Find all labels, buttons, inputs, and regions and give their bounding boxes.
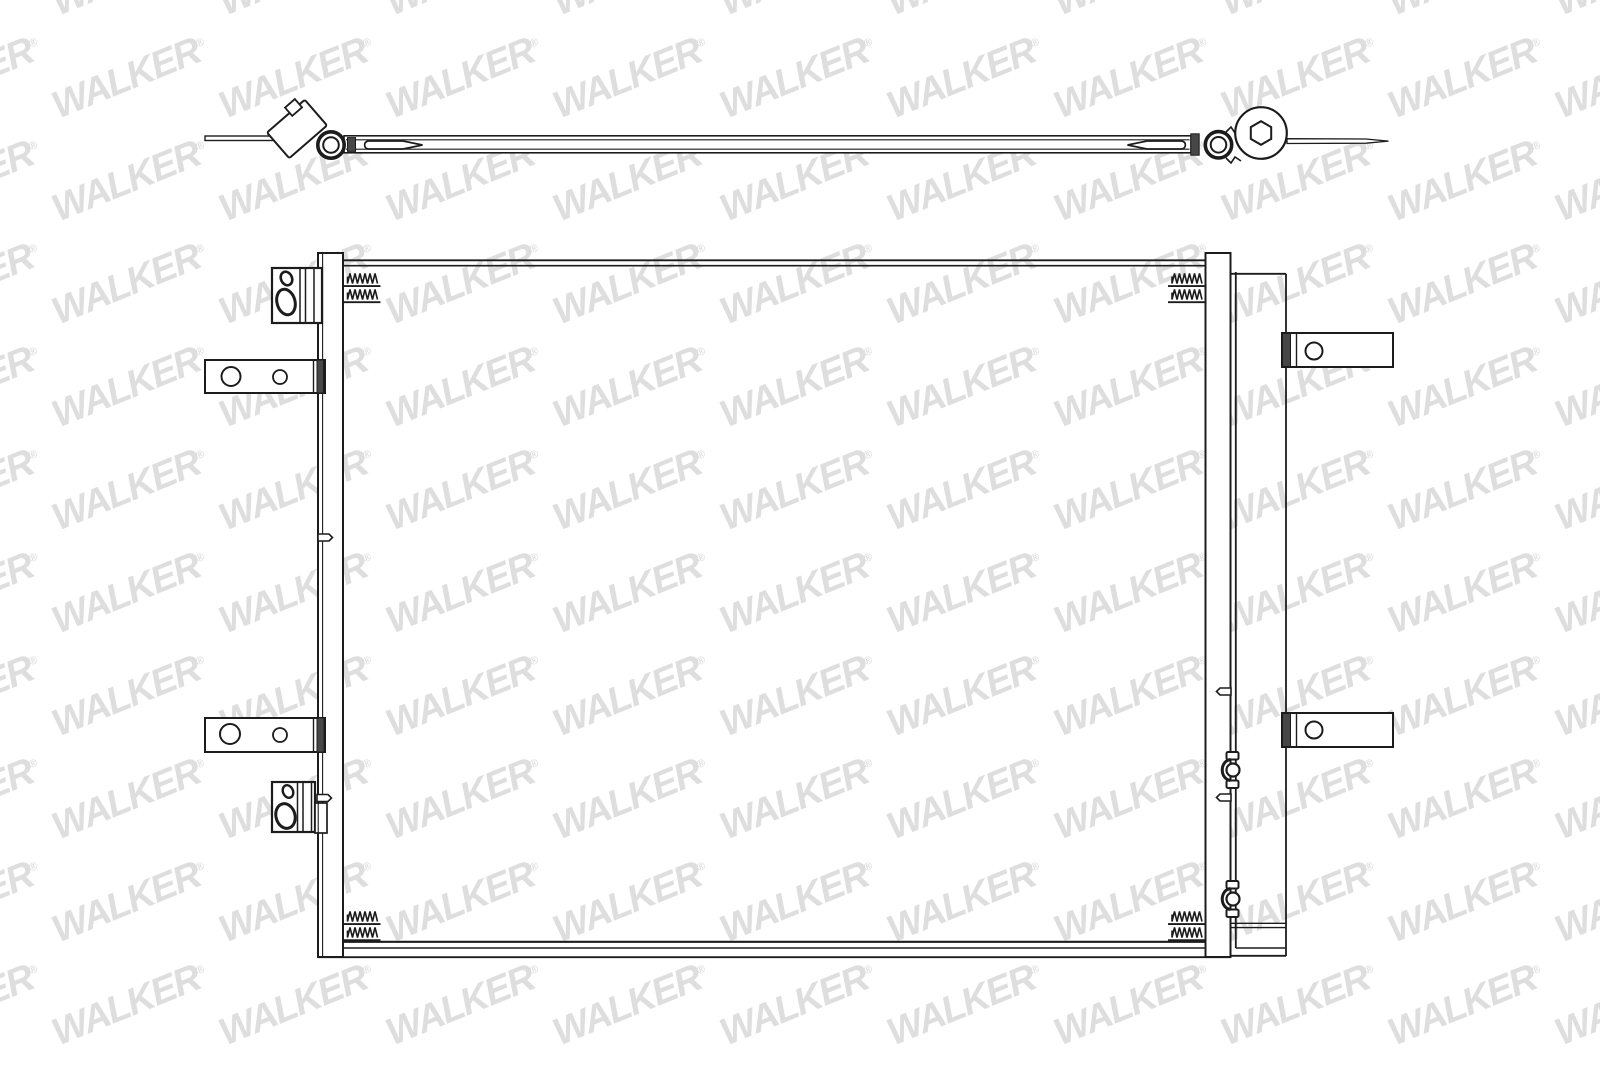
mounting-tab-lower-left (205, 718, 325, 752)
top-view-left-connector (348, 138, 356, 152)
spring-symbol-bottom-left (344, 912, 381, 941)
top-view-end-divider (1191, 134, 1199, 155)
spring-symbol-bottom-right (1168, 912, 1205, 941)
top-view-left-rod (205, 136, 278, 141)
top-view-right-pointer-rod (1287, 139, 1389, 144)
spring-symbol-top-left (344, 274, 381, 303)
bleed-pin-right-upper (1217, 688, 1232, 695)
mounting-tab-upper-right (1282, 333, 1393, 367)
bleed-pin-lower-left (317, 795, 332, 802)
top-view-right-bushing-ring (1205, 132, 1231, 158)
bleed-pin-right-lower (1217, 794, 1232, 801)
condenser-technical-drawing (0, 0, 1600, 1067)
top-view-pivot-eye-hex-nut (1235, 107, 1287, 159)
receiver-drier (1231, 272, 1287, 956)
technical-drawing-page: WALKER®WALKER®WALKER®WALKER®WALKER®WALKE… (0, 0, 1600, 1067)
condenser-front-view (205, 253, 1393, 957)
mounting-tab-lower-right (1282, 713, 1393, 747)
mounting-bracket-upper-left (272, 268, 322, 323)
mounting-tab-upper-left (205, 360, 325, 393)
condenser-top-view (205, 94, 1389, 163)
spring-symbol-top-right (1168, 274, 1205, 303)
top-view-crossbar (344, 136, 1191, 153)
top-view-left-bushing-ring (318, 132, 344, 158)
bleed-pin-left-tank (318, 534, 333, 541)
left-header-tank (318, 253, 343, 957)
right-header-tank (1206, 253, 1231, 957)
